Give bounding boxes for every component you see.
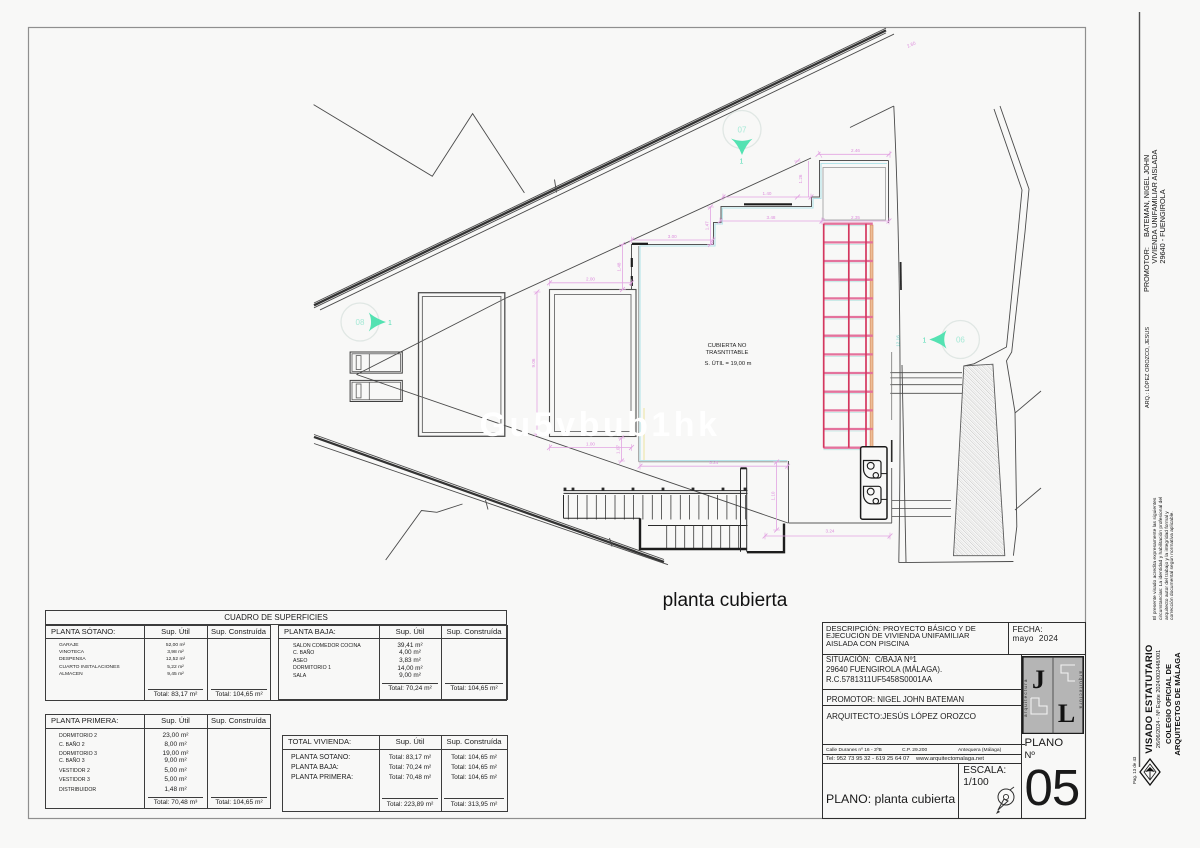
- svg-text:TRASNTITABLE: TRASNTITABLE: [706, 350, 749, 356]
- svg-text:08: 08: [356, 318, 365, 327]
- svg-text:07: 07: [738, 126, 747, 135]
- svg-text:2.35: 2.35: [851, 215, 860, 220]
- svg-text:3.24: 3.24: [826, 529, 835, 534]
- svg-text:CUBIERTA NO: CUBIERTA NO: [708, 343, 747, 349]
- svg-text:1.48: 1.48: [616, 262, 621, 271]
- svg-text:1: 1: [388, 320, 392, 327]
- svg-text:1.10: 1.10: [770, 491, 775, 500]
- svg-text:1: 1: [740, 159, 744, 166]
- svg-text:2.46: 2.46: [851, 148, 860, 153]
- svg-text:3.48: 3.48: [767, 215, 776, 220]
- svg-text:1.47: 1.47: [704, 221, 709, 230]
- svg-text:S. ÚTIL = 19,00 m: S. ÚTIL = 19,00 m: [705, 360, 752, 367]
- svg-text:L: L: [1058, 699, 1075, 728]
- svg-text:12.16: 12.16: [896, 335, 901, 347]
- svg-text:1.26: 1.26: [798, 174, 803, 183]
- svg-text:9.06: 9.06: [531, 358, 536, 367]
- svg-text:2.60: 2.60: [906, 40, 917, 48]
- svg-text:2.00: 2.00: [586, 277, 595, 282]
- svg-text:arquitectura: arquitectura: [1023, 678, 1028, 717]
- svg-text:Gu5vbub1hk: Gu5vbub1hk: [480, 406, 721, 444]
- svg-text:06: 06: [956, 336, 965, 345]
- svg-text:3.00: 3.00: [668, 234, 677, 239]
- svg-text:5.24: 5.24: [709, 460, 718, 465]
- svg-text:arquitectura: arquitectura: [1078, 671, 1083, 710]
- svg-text:J: J: [1032, 665, 1045, 694]
- svg-text:1.40: 1.40: [763, 191, 772, 196]
- svg-text:1: 1: [923, 338, 927, 345]
- svg-text:1.07: 1.07: [615, 445, 620, 454]
